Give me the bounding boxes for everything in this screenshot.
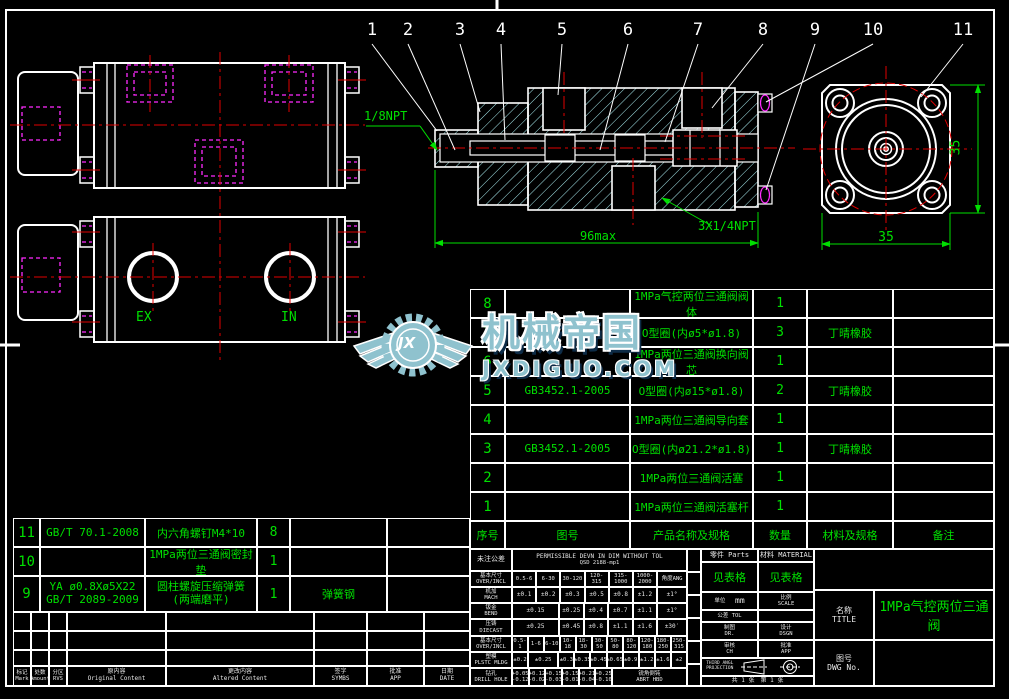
material-value: 见表格 <box>758 562 814 592</box>
bom-seq: 2 <box>470 463 505 492</box>
tol-row-diecast: 压铸DIECAST ±0.25 ±0.45 ±0.8 ±1.1 ±1.6 ±30… <box>470 619 687 636</box>
table-row: 9 YA ø0.8Xø5X22 GB/T 2089-2009 圆柱螺旋压缩弹簧 … <box>13 576 470 612</box>
bom-name: 1MPa两位三通阀活塞杆 <box>630 492 753 521</box>
bom-qty: 1 <box>753 492 807 521</box>
bom-header-note: 备注 <box>893 521 994 549</box>
bom-name: O型圈(内ø21.2*ø1.8) <box>630 434 753 463</box>
sheet-count: 共 1 张 第 1 张 <box>701 676 814 686</box>
balloon-8: 8 <box>751 20 775 40</box>
bom-seq: 9 <box>13 576 40 612</box>
balloon-5: 5 <box>550 20 574 40</box>
bom-table-left: 11 GB/T 70.1-2008 内六角螺钉M4*10 8 10 1MPa两位… <box>13 518 470 612</box>
bom-seq: 11 <box>13 518 40 547</box>
projection-field: THIRD ANGL PROJECTION <box>701 658 814 676</box>
bom-material: 丁晴橡胶 <box>807 376 893 405</box>
bom-header-name: 产品名称及规格 <box>630 521 753 549</box>
bom-note <box>387 518 470 547</box>
bom-qty: 1 <box>753 434 807 463</box>
bom-material <box>290 518 387 547</box>
bom-qty: 3 <box>753 318 807 347</box>
approver-field: 批准APP <box>758 640 814 658</box>
watermark-domain-text: JXDIGUO.COM <box>482 357 678 381</box>
bom-material: 丁晴橡胶 <box>807 434 893 463</box>
bom-material: 弹簧钢 <box>290 576 387 612</box>
bom-code <box>505 492 630 521</box>
bom-note <box>893 318 994 347</box>
bom-name: 1MPa两位三通阀导向套 <box>630 405 753 434</box>
material-header: 材料 MATERIAL <box>758 549 814 562</box>
bom-code <box>505 405 630 434</box>
revision-table: 标记Mark 处数Amount 分区RVS 原内容Original Conten… <box>13 612 470 686</box>
dwg-no-label: 图号DWG No. <box>814 640 874 686</box>
bom-note <box>893 463 994 492</box>
rev-col-original: 原内容Original Content <box>67 666 166 686</box>
projection-label: THIRD ANGL PROJECTION <box>705 662 735 672</box>
revision-empty-row <box>13 631 470 650</box>
revision-header-row: 标记Mark 处数Amount 分区RVS 原内容Original Conten… <box>13 666 470 686</box>
bom-seq: 1 <box>470 492 505 521</box>
bom-name: 圆柱螺旋压缩弹簧 (两端磨平) <box>145 576 257 612</box>
table-row: 10 1MPa两位三通阀密封垫 1 <box>13 547 470 576</box>
bom-header-code: 图号 <box>505 521 630 549</box>
tol-title-zh: 未注公差 <box>470 549 512 571</box>
bom-header-material: 材料及规格 <box>807 521 893 549</box>
balloon-3: 3 <box>448 20 472 40</box>
bom-note <box>387 547 470 576</box>
dwg-no-value <box>874 640 994 686</box>
tol-drill-note: 锐角倒钝 ABRT HBD <box>612 668 687 686</box>
bom-material: 丁晴橡胶 <box>807 318 893 347</box>
title-block: 零件 Parts 材料 MATERIAL 见表格 见表格 单位 mm 比例SCA… <box>701 549 994 686</box>
bom-name: 1MPa两位三通阀活塞 <box>630 463 753 492</box>
bom-material <box>807 405 893 434</box>
watermark-brand-text: 机械帝国 <box>482 302 678 357</box>
bom-code: GB/T 70.1-2008 <box>40 518 145 547</box>
rev-col-altered: 更改内容Altered Content <box>166 666 314 686</box>
bom-material <box>807 463 893 492</box>
tol-row-mach: 机加MACH ±0.1 ±0.2 ±0.3 ±0.5 ±0.8 ±1.2 ±1° <box>470 587 687 603</box>
checker-field: 审核CH <box>701 640 758 658</box>
parts-header: 零件 Parts <box>701 549 758 562</box>
rev-col-mark: 标记Mark <box>13 666 31 686</box>
tol-field: 公差 TOL <box>701 610 758 622</box>
drafter-field: 制图DR. <box>701 622 758 640</box>
bom-note <box>893 289 994 318</box>
plan-view-bottom <box>18 217 359 342</box>
tol-dim-label: 基本尺寸OVER/INCL <box>470 571 512 587</box>
bom-note <box>893 347 994 376</box>
bom-code <box>505 463 630 492</box>
tol-row-plastic: 塑模PLSTC MLDG ±0.2 ±0.25 ±0.3 ±0.35 ±0.45… <box>470 652 687 668</box>
watermark-monogram: JX <box>398 334 415 352</box>
dim-35-right: 35 <box>948 140 963 156</box>
bom-header-seq: 序号 <box>470 521 505 549</box>
tol-dim-label2: 基本尺寸OVER/INCL <box>470 636 512 652</box>
bom-material <box>807 289 893 318</box>
balloon-1: 1 <box>360 20 384 40</box>
dim-35-bottom: 35 <box>866 230 906 245</box>
titleblock-blank-cell <box>814 549 994 590</box>
designer-field: 设计DSGN <box>758 622 814 640</box>
bom-header-row: 序号 图号 产品名称及规格 数量 材料及规格 备注 <box>470 521 994 549</box>
rev-col-symbs: 签字SYMBS <box>314 666 367 686</box>
rev-col-rvs: 分区RVS <box>49 666 67 686</box>
balloon-11: 11 <box>951 20 975 40</box>
bom-qty: 2 <box>753 376 807 405</box>
bom-seq: 3 <box>470 434 505 463</box>
note-3x1-4npt: 3X1/4NPT <box>698 219 756 233</box>
parts-value: 见表格 <box>701 562 758 592</box>
bom-seq: 4 <box>470 405 505 434</box>
unit-field: 单位 mm <box>701 592 758 610</box>
rev-col-amount: 处数Amount <box>31 666 49 686</box>
tolerance-table: 未注公差 PERMISSIBLE DEVN IN DIM WITHOUT TOL… <box>470 549 687 686</box>
bom-material <box>807 347 893 376</box>
table-row: 11 GB/T 70.1-2008 内六角螺钉M4*10 8 <box>13 518 470 547</box>
bom-qty: 1 <box>257 547 290 576</box>
bom-header-qty: 数量 <box>753 521 807 549</box>
bom-note <box>893 492 994 521</box>
balloon-7: 7 <box>686 20 710 40</box>
bom-note <box>893 434 994 463</box>
rev-col-app: 批准APP <box>367 666 424 686</box>
balloon-4: 4 <box>489 20 513 40</box>
bom-code <box>40 547 145 576</box>
winged-gear-logo-icon: JX <box>352 302 474 388</box>
section-view <box>435 88 772 210</box>
drawing-title: 1MPa气控两位三通阀 <box>874 590 994 640</box>
titleblock-side-strip <box>687 549 701 686</box>
table-row: 4 1MPa两位三通阀导向套 1 <box>470 405 994 434</box>
bom-code: YA ø0.8Xø5X22 GB/T 2089-2009 <box>40 576 145 612</box>
balloon-10: 10 <box>861 20 885 40</box>
bom-qty: 1 <box>753 347 807 376</box>
bom-note <box>893 376 994 405</box>
balloon-9: 9 <box>803 20 827 40</box>
tol-title-en: PERMISSIBLE DEVN IN DIM WITHOUT TOLQSD 2… <box>512 549 687 571</box>
bom-note <box>893 405 994 434</box>
bom-material <box>290 547 387 576</box>
note-1-8npt: 1/8NPT <box>364 109 407 123</box>
tol-row-drill: 钻孔DRILL HOLE +0.05 -0.12 +0.12 -0.02 +0.… <box>470 668 687 686</box>
table-row: 2 1MPa两位三通阀活塞 1 <box>470 463 994 492</box>
bom-name: 内六角螺钉M4*10 <box>145 518 257 547</box>
revision-empty-row <box>13 650 470 666</box>
bom-qty: 1 <box>257 576 290 612</box>
bom-qty: 1 <box>753 405 807 434</box>
watermark: JX 机械帝国 JXDIGUO.COM <box>352 302 678 388</box>
bom-qty: 1 <box>753 289 807 318</box>
dim-96max: 96max <box>560 229 636 243</box>
bom-qty: 8 <box>257 518 290 547</box>
port-label-in: IN <box>281 310 297 325</box>
table-row: 3 GB3452.1-2005 O型圈(内ø21.2*ø1.8) 1 丁晴橡胶 <box>470 434 994 463</box>
tol-angle-header: 角度ANG <box>657 571 687 587</box>
title-label: 名称TITLE <box>814 590 874 640</box>
tol-row-bend: 钣金BEND ±0.15 ±0.25 ±0.4 ±0.7 ±1.1 ±1° <box>470 603 687 619</box>
table-row: 1 1MPa两位三通阀活塞杆 1 <box>470 492 994 521</box>
scale-field: 比例SCALE <box>758 592 814 610</box>
bom-seq: 10 <box>13 547 40 576</box>
bom-note <box>387 576 470 612</box>
bom-qty: 1 <box>753 463 807 492</box>
cad-screenshot: { "accents": { "line_white": "#ffffff", … <box>0 0 1009 699</box>
third-angle-projection-icon <box>740 659 810 675</box>
bom-name: 1MPa两位三通阀密封垫 <box>145 547 257 576</box>
bom-material <box>807 492 893 521</box>
rev-col-date: 日期DATE <box>424 666 470 686</box>
revision-empty-row <box>13 612 470 631</box>
balloon-2: 2 <box>396 20 420 40</box>
balloon-6: 6 <box>616 20 640 40</box>
port-label-ex: EX <box>136 310 152 325</box>
bom-code: GB3452.1-2005 <box>505 434 630 463</box>
